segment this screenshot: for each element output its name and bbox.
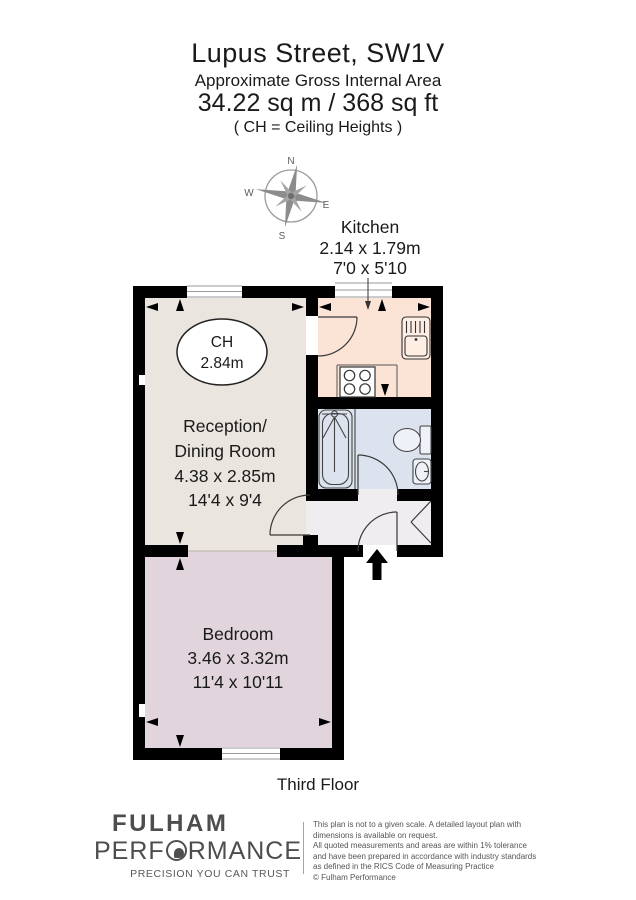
compass-label-n: N — [287, 156, 294, 167]
bathtub-icon — [319, 410, 352, 488]
disclaimer-line: © Fulham Performance — [313, 873, 568, 884]
kitchen-dims-m: 2.14 x 1.79m — [319, 238, 420, 258]
disclaimer-line: All quoted measurements and areas are wi… — [313, 841, 568, 852]
reception-name-2: Dining Room — [174, 441, 275, 461]
bedroom-dims-ft: 11'4 x 10'11 — [193, 672, 284, 692]
toilet-icon — [394, 426, 432, 454]
wall-notch — [139, 375, 145, 385]
kitchen-dims-ft: 7'0 x 5'10 — [333, 258, 407, 278]
bedroom-dims-m: 3.46 x 3.32m — [187, 648, 288, 668]
floor-plan: N E S W — [0, 0, 636, 900]
ceiling-height-badge: CH 2.84m — [177, 319, 267, 385]
sink-icon — [402, 317, 430, 359]
entrance-arrow — [366, 549, 388, 580]
disclaimer-line: dimensions is available on request. — [313, 831, 568, 842]
brand-logo: FULHAM PERFRMANCE PRECISION YOU CAN TRUS… — [94, 810, 298, 880]
footer-divider — [303, 822, 304, 874]
brand-tagline: PRECISION YOU CAN TRUST — [94, 868, 298, 880]
compass-icon: N E S W — [244, 156, 332, 242]
compass-label-s: S — [279, 231, 286, 242]
disclaimer-text: This plan is not to a given scale. A det… — [313, 820, 568, 883]
reception-name-1: Reception/ — [183, 416, 267, 436]
brand-name-top: FULHAM — [112, 810, 298, 838]
bedroom-label: Bedroom 3.46 x 3.32m 11'4 x 10'11 — [187, 624, 288, 692]
brand-name-bottom: PERFRMANCE — [94, 837, 298, 866]
reception-dims-m: 4.38 x 2.85m — [174, 466, 275, 486]
disclaimer-line: and have been prepared in accordance wit… — [313, 852, 568, 863]
compass-label-w: W — [244, 188, 254, 199]
bedroom-name: Bedroom — [202, 624, 273, 644]
disclaimer-line: This plan is not to a given scale. A det… — [313, 820, 568, 831]
basin-icon — [413, 459, 431, 484]
ch-label: CH — [211, 334, 233, 351]
disclaimer-line: as defined in the RICS Code of Measuring… — [313, 862, 568, 873]
reception-dims-ft: 14'4 x 9'4 — [188, 490, 262, 510]
kitchen-window — [335, 282, 392, 298]
wall-notch — [139, 704, 145, 717]
hob-icon — [340, 367, 375, 397]
bedroom-window — [222, 747, 280, 760]
logo-o-icon — [166, 840, 187, 861]
ch-value: 2.84m — [200, 355, 243, 372]
kitchen-name: Kitchen — [341, 217, 399, 237]
compass-label-e: E — [323, 200, 330, 211]
reception-window — [187, 285, 242, 298]
floor-label: Third Floor — [0, 775, 636, 795]
